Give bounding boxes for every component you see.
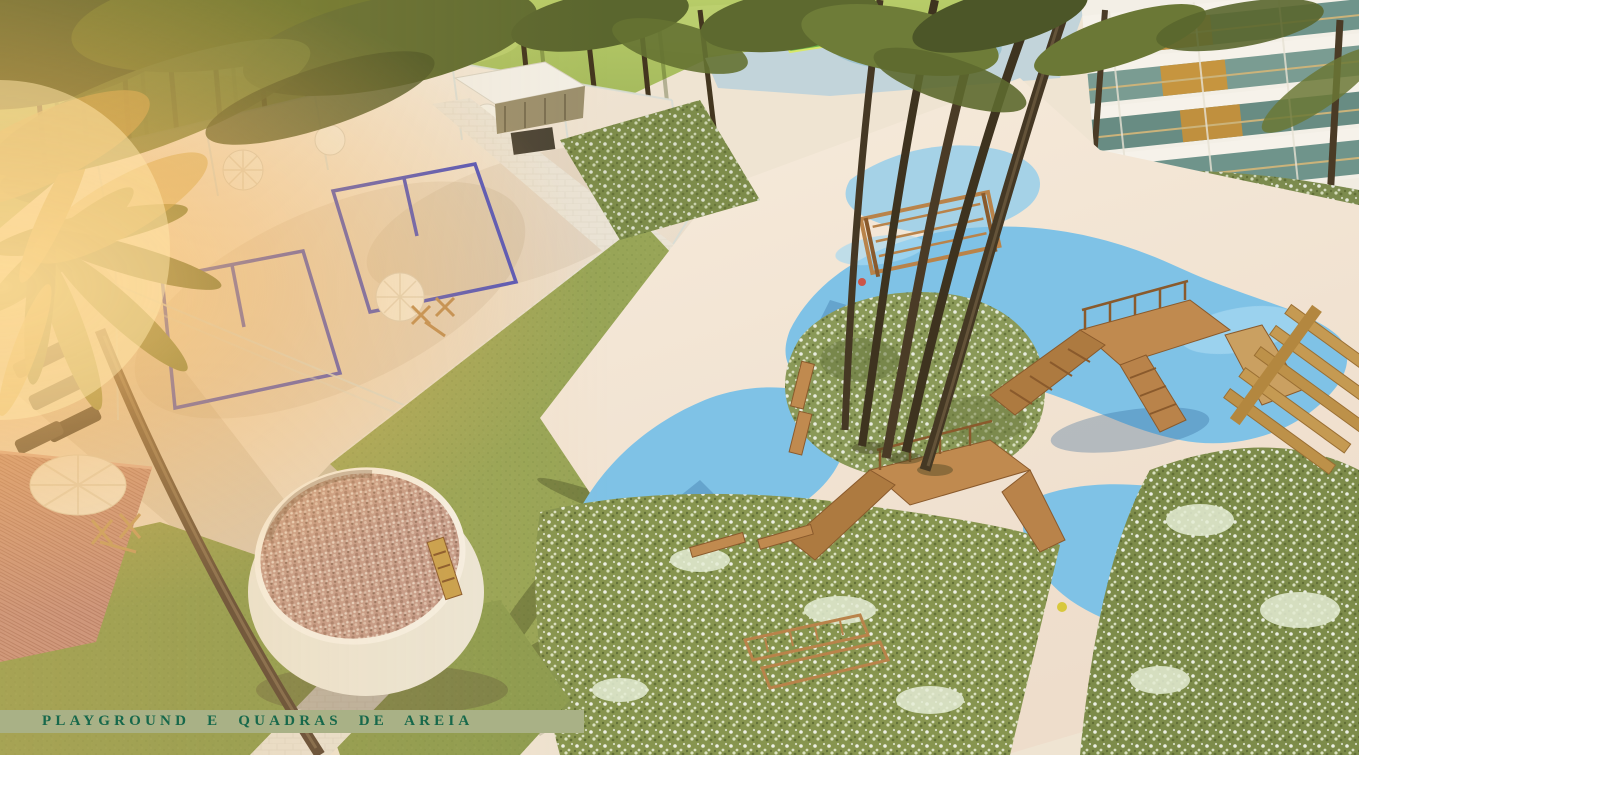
architectural-render: PLAYGROUND E QUADRAS DE AREIA [0, 0, 1359, 755]
caption-banner: PLAYGROUND E QUADRAS DE AREIA [0, 710, 584, 733]
sun-flare [0, 0, 1359, 755]
caption-text: PLAYGROUND E QUADRAS DE AREIA [42, 714, 473, 729]
page-canvas: PLAYGROUND E QUADRAS DE AREIA [0, 0, 1600, 791]
